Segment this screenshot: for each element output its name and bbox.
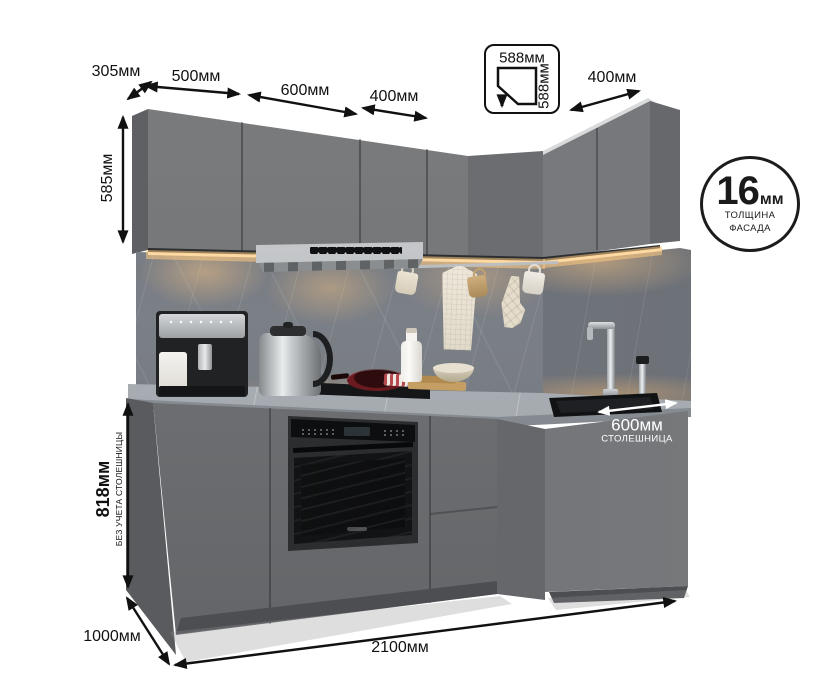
dim-arrow-top-depth [128, 82, 151, 99]
oven-buttons [300, 428, 334, 436]
coffee-machine-buttons [166, 319, 238, 325]
dim-arrow-top-w3 [363, 108, 426, 118]
hanging-mug [394, 270, 419, 295]
corner-cabinet-plan-icon [496, 66, 538, 106]
dim-top-w1: 500мм [172, 69, 221, 85]
bowl-rim [433, 363, 474, 373]
range-hood-control-panel [310, 247, 402, 254]
facade-thickness-line1: ТОЛЩИНА [725, 211, 776, 222]
dim-countertop-label: СТОЛЕШНИЦА [601, 434, 673, 444]
corner-cabinet-badge: 588мм 588мм [484, 44, 560, 114]
coffee-machine-panel [159, 314, 245, 338]
dim-countertop-depth: 600мм [611, 417, 663, 434]
soap-dispenser-top [636, 356, 649, 364]
dim-top-w2: 600мм [281, 83, 330, 99]
faucet [607, 326, 615, 397]
facade-thickness-value: 16 [716, 173, 759, 209]
dim-arrow-top-right [571, 91, 639, 110]
milk-bottle-cap [406, 328, 417, 333]
hanging-mug [467, 275, 489, 298]
oven-brand-logo [347, 527, 367, 531]
dim-upper-height: 585мм [100, 154, 116, 203]
dim-base-height-note: БЕЗ УЧЕТА СТОЛЕШНИЦЫ [115, 432, 124, 547]
kitchen-dimension-diagram: 305мм 500мм 600мм 400мм 400мм 585мм 818м… [0, 0, 816, 700]
corner-cabinet-depth: 588мм [536, 63, 553, 109]
dim-top-depth: 305мм [92, 64, 141, 80]
facade-thickness-unit: мм [760, 193, 784, 207]
dim-total-width: 2100мм [371, 640, 429, 656]
dim-base-height: 818мм [94, 461, 112, 518]
kettle [259, 333, 321, 396]
milk-bottle [401, 341, 422, 382]
facade-thickness-value-row: 16 мм [716, 173, 783, 209]
hanging-mug [522, 271, 546, 296]
dim-arrow-top-w1 [146, 86, 239, 94]
facade-thickness-badge: 16 мм ТОЛЩИНА ФАСАДА [700, 156, 800, 252]
dim-total-depth: 1000мм [83, 629, 141, 645]
dim-top-right: 400мм [588, 70, 637, 86]
dim-top-w3: 400мм [370, 89, 419, 105]
coffee-machine-drip-tray [159, 386, 245, 396]
oven-buttons [382, 429, 408, 437]
faucet-outlet [587, 327, 593, 340]
coffee-machine-spout [198, 344, 212, 370]
oven-display [344, 427, 370, 436]
soap-dispenser [639, 362, 646, 395]
kettle-knob [283, 322, 293, 328]
facade-thickness-line2: ФАСАДА [729, 224, 771, 235]
